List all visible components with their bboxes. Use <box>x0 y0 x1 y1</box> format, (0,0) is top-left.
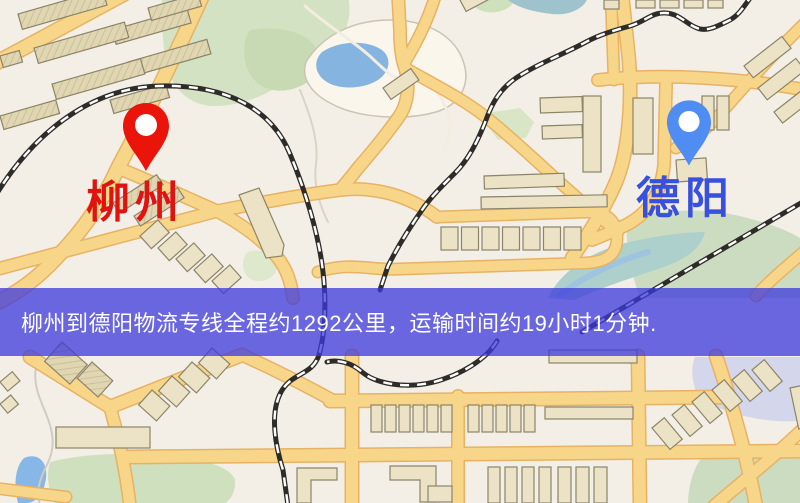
road <box>126 451 800 457</box>
building <box>56 427 150 448</box>
building <box>413 405 424 432</box>
building <box>481 195 607 209</box>
building <box>503 227 520 250</box>
building <box>428 486 452 502</box>
origin-pin-icon[interactable] <box>122 102 170 172</box>
building <box>488 467 500 503</box>
road <box>638 356 640 503</box>
map-screenshot: 柳州 德阳 柳州到德阳物流专线全程约1292公里，运输时间约19小时1分钟. <box>0 0 800 503</box>
route-info-banner: 柳州到德阳物流专线全程约1292公里，运输时间约19小时1分钟. <box>0 288 800 356</box>
building <box>583 96 601 172</box>
building <box>576 467 589 503</box>
building <box>371 405 382 432</box>
building <box>524 405 535 432</box>
building <box>604 0 619 9</box>
destination-pin-icon[interactable] <box>666 99 712 167</box>
building <box>510 405 521 432</box>
building <box>636 0 655 8</box>
origin-city-label: 柳州 <box>86 181 184 225</box>
building <box>482 405 493 432</box>
building <box>717 96 729 130</box>
building <box>484 173 564 189</box>
road <box>330 397 730 401</box>
building <box>545 407 633 419</box>
building <box>660 0 679 8</box>
building <box>594 467 607 503</box>
building <box>564 227 581 250</box>
building <box>399 405 410 432</box>
building <box>542 125 582 139</box>
building <box>540 97 582 113</box>
destination-pin-glyph <box>666 99 712 167</box>
building <box>441 227 458 250</box>
building <box>708 0 723 8</box>
building <box>385 405 396 432</box>
building <box>558 467 571 503</box>
destination-city-label: 德阳 <box>636 177 734 221</box>
building <box>684 0 703 8</box>
building <box>633 98 653 154</box>
route-info-text: 柳州到德阳物流专线全程约1292公里，运输时间约19小时1分钟. <box>21 306 657 338</box>
building <box>427 405 438 432</box>
building <box>462 227 479 250</box>
road <box>611 0 614 80</box>
building <box>505 467 517 503</box>
building <box>544 227 561 250</box>
building <box>468 405 479 432</box>
building <box>539 467 551 503</box>
origin-pin-glyph <box>122 102 170 172</box>
building <box>496 405 507 432</box>
building <box>482 227 499 250</box>
building <box>522 467 534 503</box>
building <box>441 405 452 432</box>
building <box>523 227 540 250</box>
map-canvas[interactable] <box>0 0 800 503</box>
